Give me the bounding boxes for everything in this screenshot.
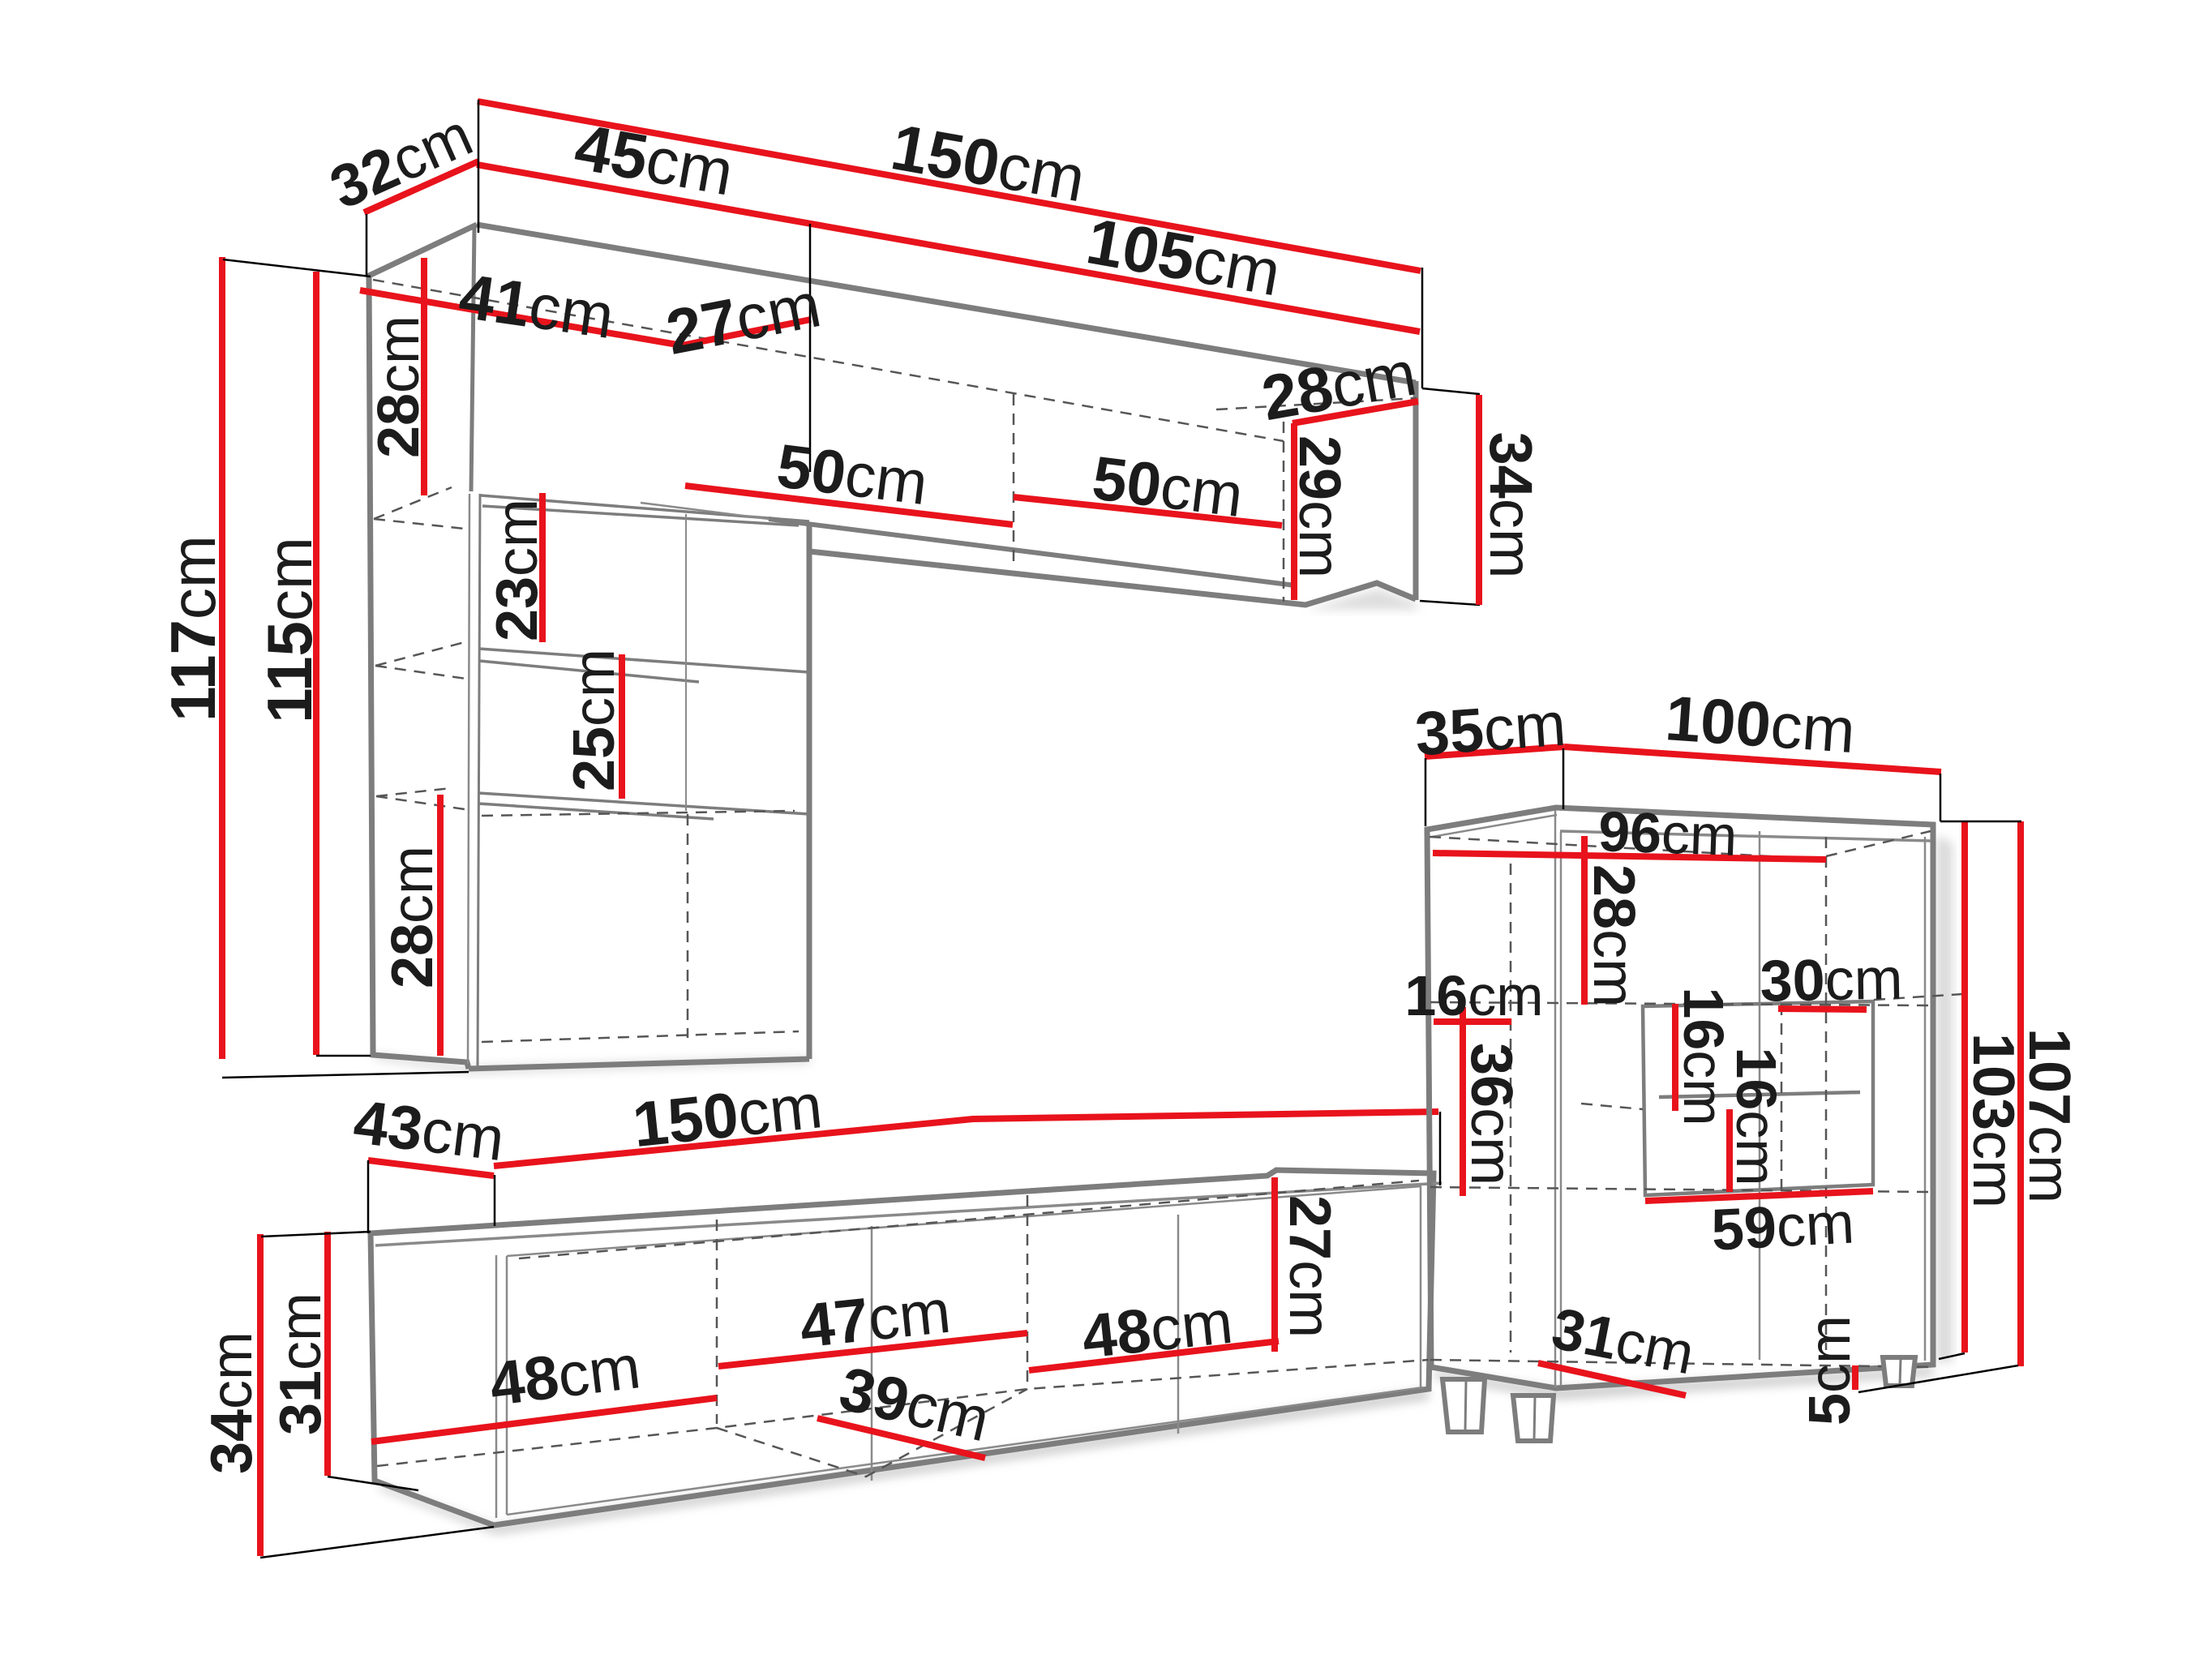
svg-text:36cm: 36cm: [1459, 1043, 1524, 1185]
svg-text:28cm: 28cm: [380, 846, 445, 988]
svg-text:5cm: 5cm: [1798, 1315, 1863, 1425]
svg-text:115cm: 115cm: [254, 537, 325, 723]
svg-text:107cm: 107cm: [2017, 1028, 2081, 1203]
svg-text:25cm: 25cm: [562, 649, 627, 791]
svg-text:34cm: 34cm: [1477, 432, 1545, 579]
svg-text:27cm: 27cm: [1277, 1195, 1342, 1338]
svg-text:117cm: 117cm: [157, 535, 229, 722]
svg-text:16cm: 16cm: [1725, 1047, 1788, 1185]
svg-text:96cm: 96cm: [1597, 799, 1738, 868]
svg-text:16cm: 16cm: [1404, 964, 1543, 1027]
svg-text:59cm: 59cm: [1710, 1190, 1856, 1262]
svg-text:100cm: 100cm: [1663, 682, 1858, 766]
svg-text:28cm: 28cm: [367, 315, 431, 458]
svg-text:29cm: 29cm: [1287, 435, 1352, 578]
svg-text:23cm: 23cm: [485, 499, 550, 641]
svg-text:35cm: 35cm: [1413, 690, 1568, 769]
svg-text:30cm: 30cm: [1760, 946, 1903, 1014]
svg-text:31cm: 31cm: [268, 1292, 333, 1435]
svg-text:28cm: 28cm: [1581, 864, 1646, 1007]
svg-text:34cm: 34cm: [199, 1331, 264, 1474]
svg-text:103cm: 103cm: [1961, 1033, 2026, 1208]
